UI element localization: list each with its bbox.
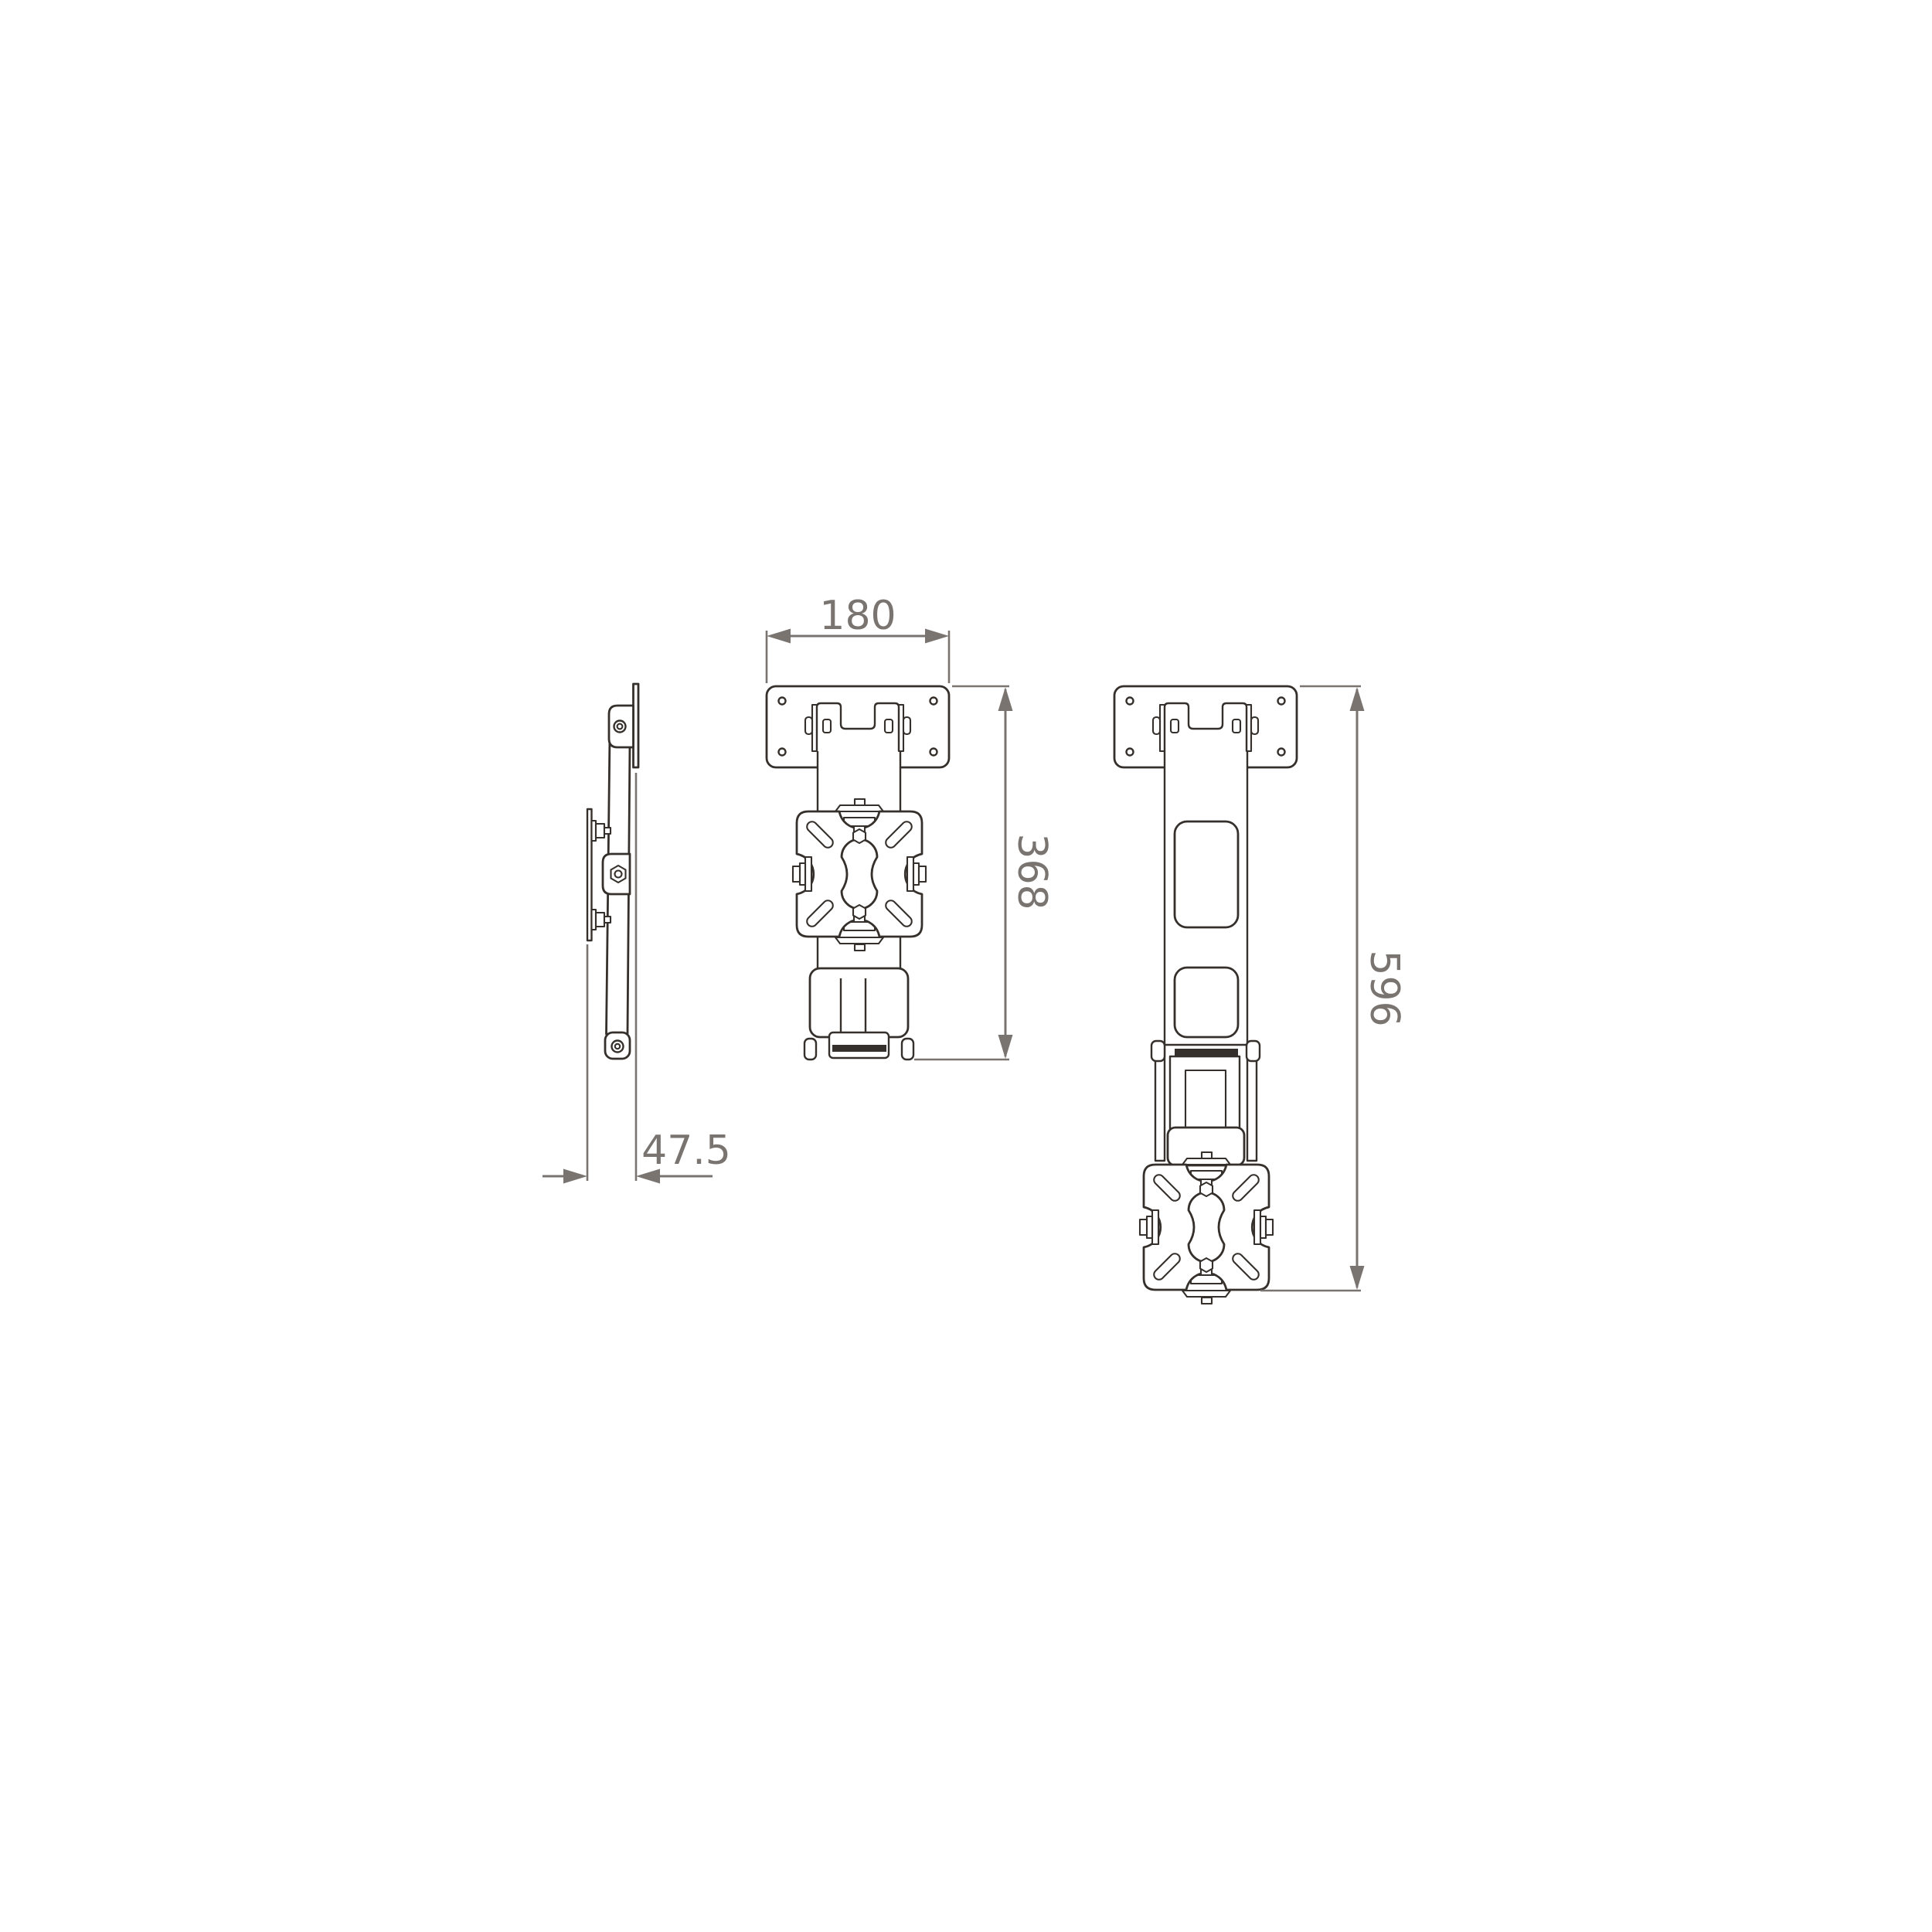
arrowhead — [767, 629, 791, 644]
side-view — [587, 684, 638, 1059]
telescope-rail-right — [1247, 1045, 1257, 1161]
latch-tab-left — [1151, 1041, 1165, 1061]
latch-slot — [832, 1045, 886, 1052]
arrowhead — [998, 1035, 1013, 1059]
vesa-plate — [1140, 1165, 1273, 1290]
dimension-height-extended: 596 — [1260, 686, 1407, 1291]
technical-drawing-canvas: 47.5 180 — [0, 0, 1932, 1932]
latch-slot — [1175, 1049, 1238, 1056]
arrowhead — [1350, 687, 1365, 711]
front-view-extended — [1114, 686, 1297, 1304]
dimension-label-height-extended: 596 — [1361, 950, 1407, 1026]
pivot-bolt-top — [855, 799, 865, 805]
pivot-bolt-bottom — [855, 944, 865, 951]
telescope-rail-left — [1155, 1045, 1165, 1161]
telescope-slider-inner — [1185, 1070, 1226, 1132]
pivot-bar-top — [1182, 1158, 1230, 1165]
pivot-bar-top — [835, 805, 883, 811]
pivot-bar-bottom — [1182, 1291, 1230, 1297]
dimension-label-width: 180 — [819, 593, 896, 639]
bolt-shaft — [604, 828, 611, 834]
front-view-retracted — [767, 686, 949, 1060]
dimension-label-depth: 47.5 — [641, 1128, 731, 1174]
bolt-nut — [596, 824, 604, 838]
arrowhead — [563, 1169, 587, 1184]
arrowhead — [1350, 1266, 1365, 1290]
pivot-bolt-center — [615, 1044, 620, 1049]
pivot-bolt-top — [1202, 1152, 1212, 1158]
pivot-bolt-bottom — [1202, 1298, 1212, 1304]
bolt-shaft — [604, 917, 611, 923]
latch-tab-right — [902, 1039, 913, 1060]
latch-tab-right — [1247, 1041, 1260, 1061]
tilt-nut-center — [615, 871, 622, 878]
pivot-bolt-center — [617, 724, 623, 730]
arrowhead — [998, 687, 1013, 711]
column-cutout-lower — [1175, 968, 1238, 1037]
dimension-label-height-retracted: 368 — [1009, 833, 1055, 910]
dimension-width: 180 — [767, 593, 949, 683]
arrowhead — [925, 629, 949, 644]
bolt-nut — [596, 913, 604, 927]
column-cutout-upper — [1175, 821, 1238, 927]
telescope-cover — [810, 968, 908, 1037]
latch-tab-left — [804, 1039, 816, 1060]
dimension-depth: 47.5 — [543, 773, 731, 1184]
vesa-plate — [793, 811, 926, 937]
pivot-bar-bottom — [835, 937, 883, 944]
